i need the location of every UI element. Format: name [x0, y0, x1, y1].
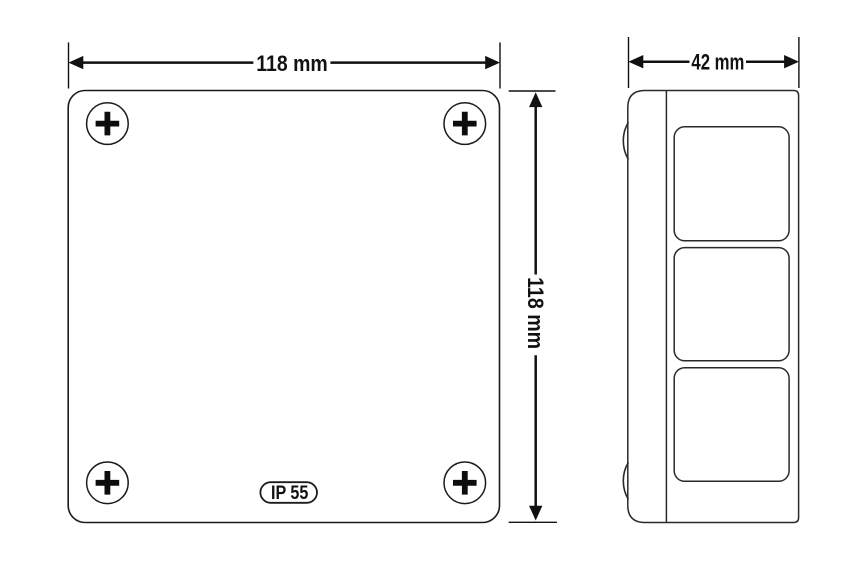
svg-text:42 mm: 42 mm — [691, 49, 744, 74]
svg-text:IP 55: IP 55 — [271, 482, 308, 504]
svg-text:118 mm: 118 mm — [256, 51, 328, 76]
svg-text:118 mm: 118 mm — [523, 277, 548, 349]
